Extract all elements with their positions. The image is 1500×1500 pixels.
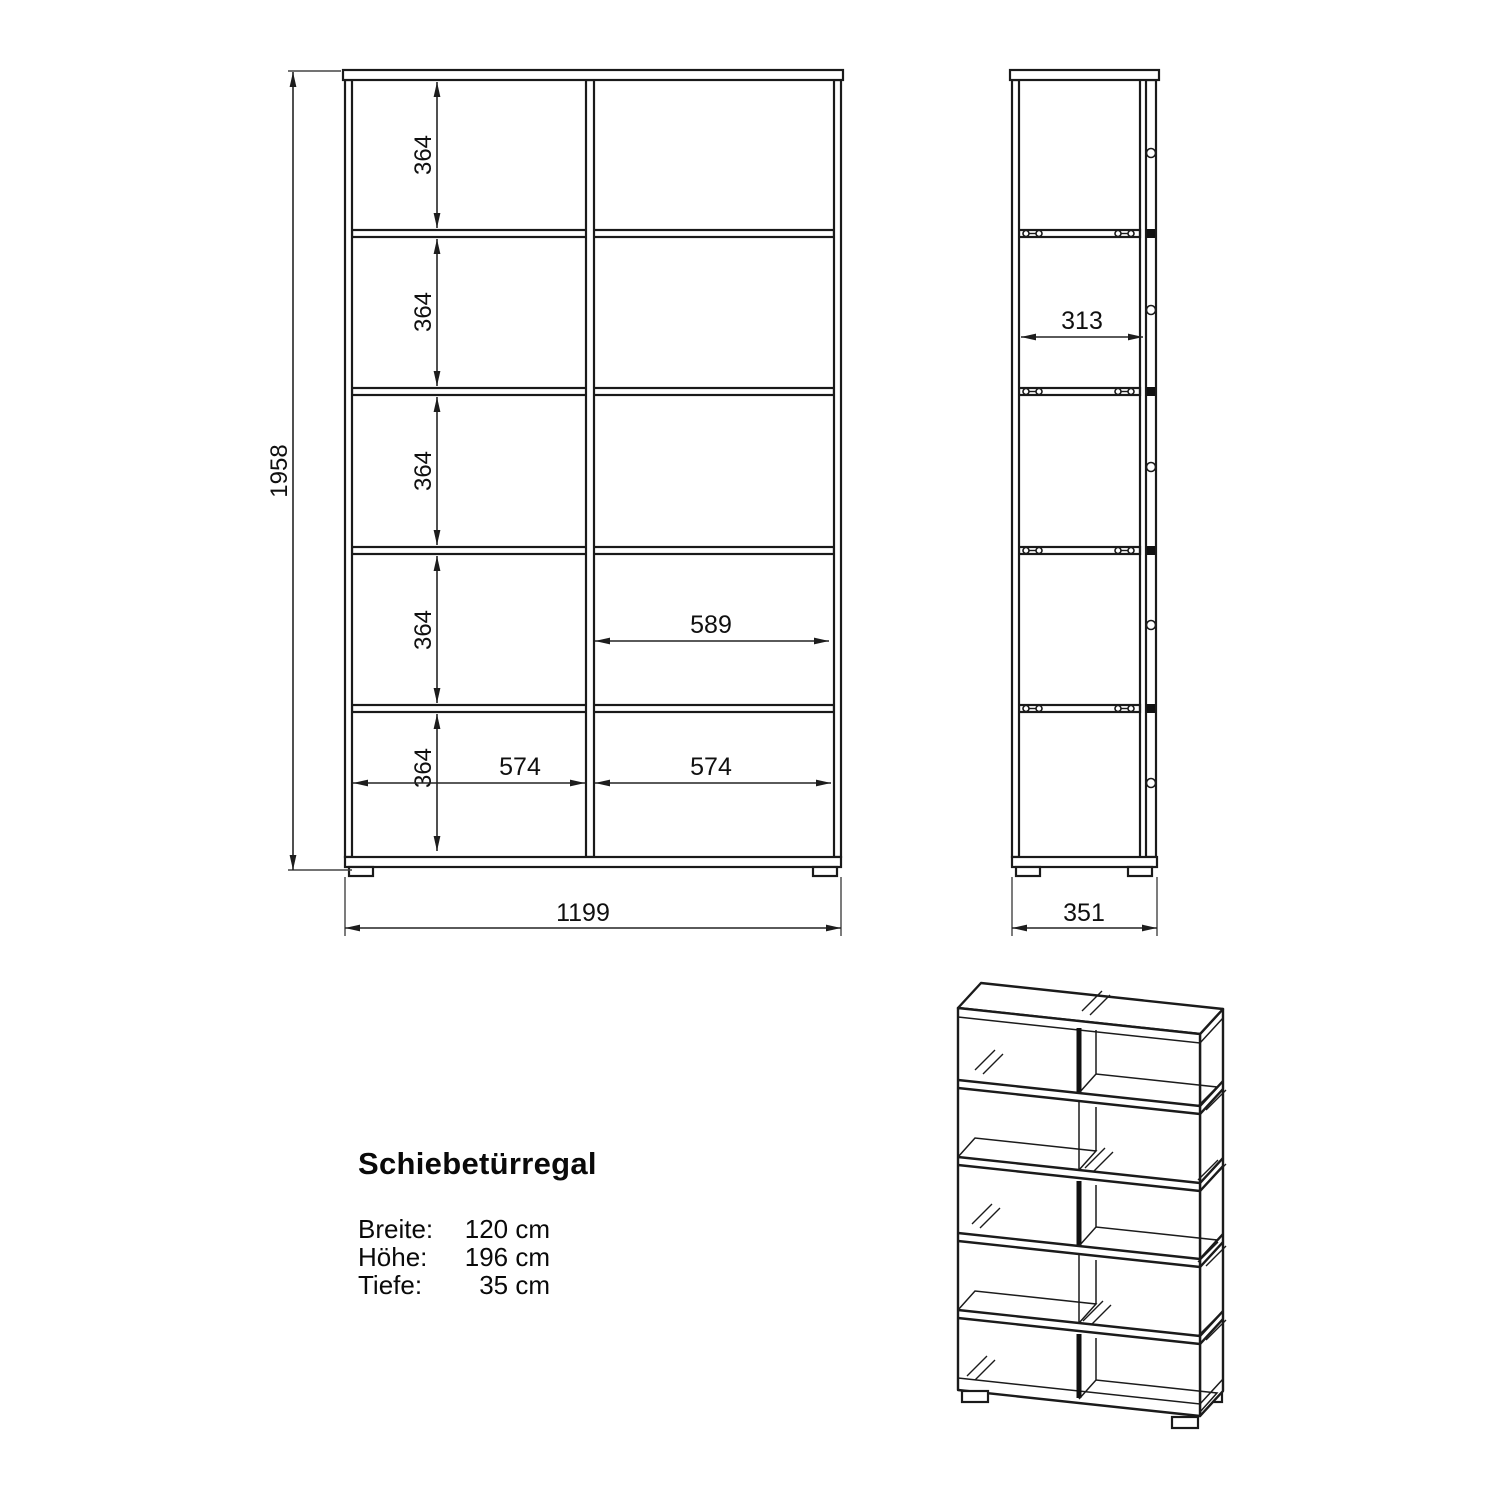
dim-label-door-width: 589 (690, 611, 732, 639)
front-foot-right (813, 867, 837, 876)
iso-foot-front-left (962, 1391, 988, 1402)
front-foot-left (349, 867, 373, 876)
front-view: 1958 364 364 364 364 364 589 (266, 70, 843, 936)
front-left-wall (345, 80, 352, 857)
front-dim-row-2: 364 (410, 239, 437, 386)
spec-label-height: Höhe: (358, 1243, 427, 1271)
iso-right-face (1200, 1009, 1223, 1416)
spec-row-width: Breite: 120 cm (358, 1215, 550, 1243)
side-view: 313 351 (1010, 70, 1159, 936)
spec-value-depth: 35 cm (479, 1271, 550, 1299)
side-foot-back (1016, 867, 1040, 876)
dim-label-row-5: 364 (410, 748, 437, 788)
iso-foot-front-right (1172, 1417, 1198, 1428)
dim-label-compartment-left: 574 (499, 753, 541, 781)
front-bottom-panel (345, 857, 841, 867)
front-dim-compartment-left: 574 (353, 753, 585, 783)
spec-row-height: Höhe: 196 cm (358, 1243, 550, 1271)
front-dim-row-3: 364 (410, 397, 437, 545)
product-specs: Breite: 120 cm Höhe: 196 cm Tiefe: 35 cm (358, 1215, 550, 1299)
spec-row-depth: Tiefe: 35 cm (358, 1271, 550, 1299)
spec-label-depth: Tiefe: (358, 1271, 422, 1299)
dim-label-inner-depth: 313 (1061, 307, 1103, 335)
dim-label-total-depth: 351 (1063, 899, 1105, 927)
product-info: Schiebetürregal Breite: 120 cm Höhe: 196… (358, 1146, 618, 1299)
front-dim-door-width: 589 (595, 611, 829, 641)
spec-label-width: Breite: (358, 1215, 433, 1243)
technical-drawing-page: 1958 364 364 364 364 364 589 (0, 0, 1500, 1500)
side-foot-front (1128, 867, 1152, 876)
front-dim-row-4: 364 (410, 556, 437, 703)
spec-value-height: 196 cm (465, 1243, 550, 1271)
side-dim-total-depth: 351 (1012, 877, 1157, 936)
furniture-dimension-drawing: 1958 364 364 364 364 364 589 (0, 0, 1500, 1500)
dim-label-row-1: 364 (410, 135, 437, 175)
dim-label-total-width: 1199 (556, 899, 610, 927)
spec-value-width: 120 cm (465, 1215, 550, 1243)
dim-label-total-height: 1958 (266, 444, 293, 497)
dim-label-row-3: 364 (410, 451, 437, 491)
side-dim-inner-depth: 313 (1021, 307, 1143, 337)
dim-label-compartment-right: 574 (690, 753, 732, 781)
iso-view (958, 983, 1226, 1428)
front-dim-total-height: 1958 (266, 71, 352, 870)
product-title: Schiebetürregal (358, 1146, 618, 1182)
front-center-divider (586, 80, 594, 857)
front-dim-compartment-right: 574 (595, 753, 831, 783)
side-back-wall (1012, 80, 1019, 857)
dim-label-row-2: 364 (410, 292, 437, 332)
side-shelf-screws (1023, 229, 1155, 713)
front-top-panel (343, 70, 843, 80)
front-right-wall (834, 80, 841, 857)
front-dim-total-width: 1199 (345, 877, 841, 936)
dim-label-row-4: 364 (410, 610, 437, 650)
front-dim-row-1: 364 (410, 82, 437, 228)
side-top-panel (1010, 70, 1159, 80)
side-bottom-panel (1012, 857, 1157, 867)
